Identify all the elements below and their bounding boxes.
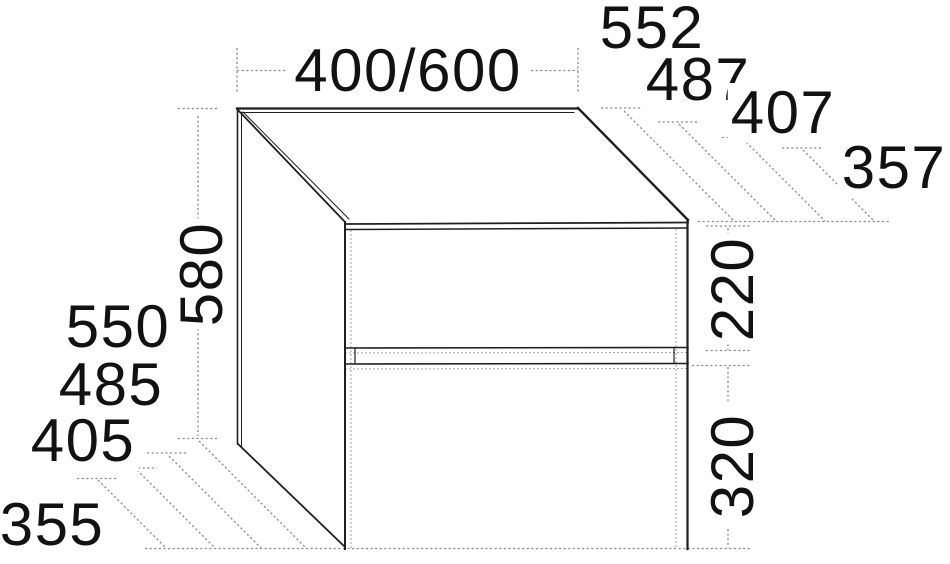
lower-drawer-top-edge bbox=[345, 364, 688, 365]
upper-drawer-dim-label: 220 bbox=[703, 234, 763, 345]
width-dim-label: 400/600 bbox=[291, 41, 524, 101]
lower-drawer-dim-label: 320 bbox=[703, 411, 763, 522]
height-dim-label-485: 485 bbox=[56, 355, 167, 415]
depth-dim-label-357: 357 bbox=[839, 138, 950, 198]
technical-drawing-canvas: 400/600 552 487 407 357 580 550 485 405 … bbox=[0, 0, 950, 564]
cabinet-body bbox=[237, 108, 688, 549]
height-dim-label-580: 580 bbox=[172, 219, 232, 330]
carcass-hidden-lines bbox=[345, 229, 688, 548]
depth-dim-label-407: 407 bbox=[728, 83, 839, 143]
cabinet-top-face bbox=[237, 108, 688, 222]
height-dim-label-355: 355 bbox=[0, 495, 107, 555]
cabinet-left-panel bbox=[238, 109, 346, 547]
height-dim-label-550: 550 bbox=[63, 297, 174, 357]
upper-drawer-bottom-edge bbox=[345, 348, 688, 349]
height-dim-label-405: 405 bbox=[28, 411, 139, 471]
cabinet-front-face bbox=[345, 220, 688, 549]
